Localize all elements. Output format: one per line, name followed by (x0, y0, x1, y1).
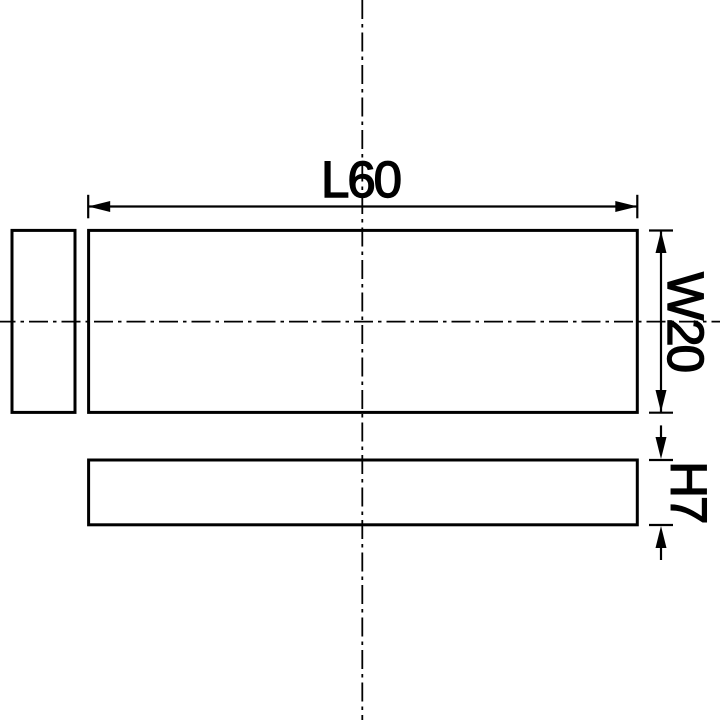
svg-text:H7: H7 (660, 461, 717, 522)
svg-text:L60: L60 (321, 151, 401, 208)
svg-text:W20: W20 (657, 272, 714, 372)
